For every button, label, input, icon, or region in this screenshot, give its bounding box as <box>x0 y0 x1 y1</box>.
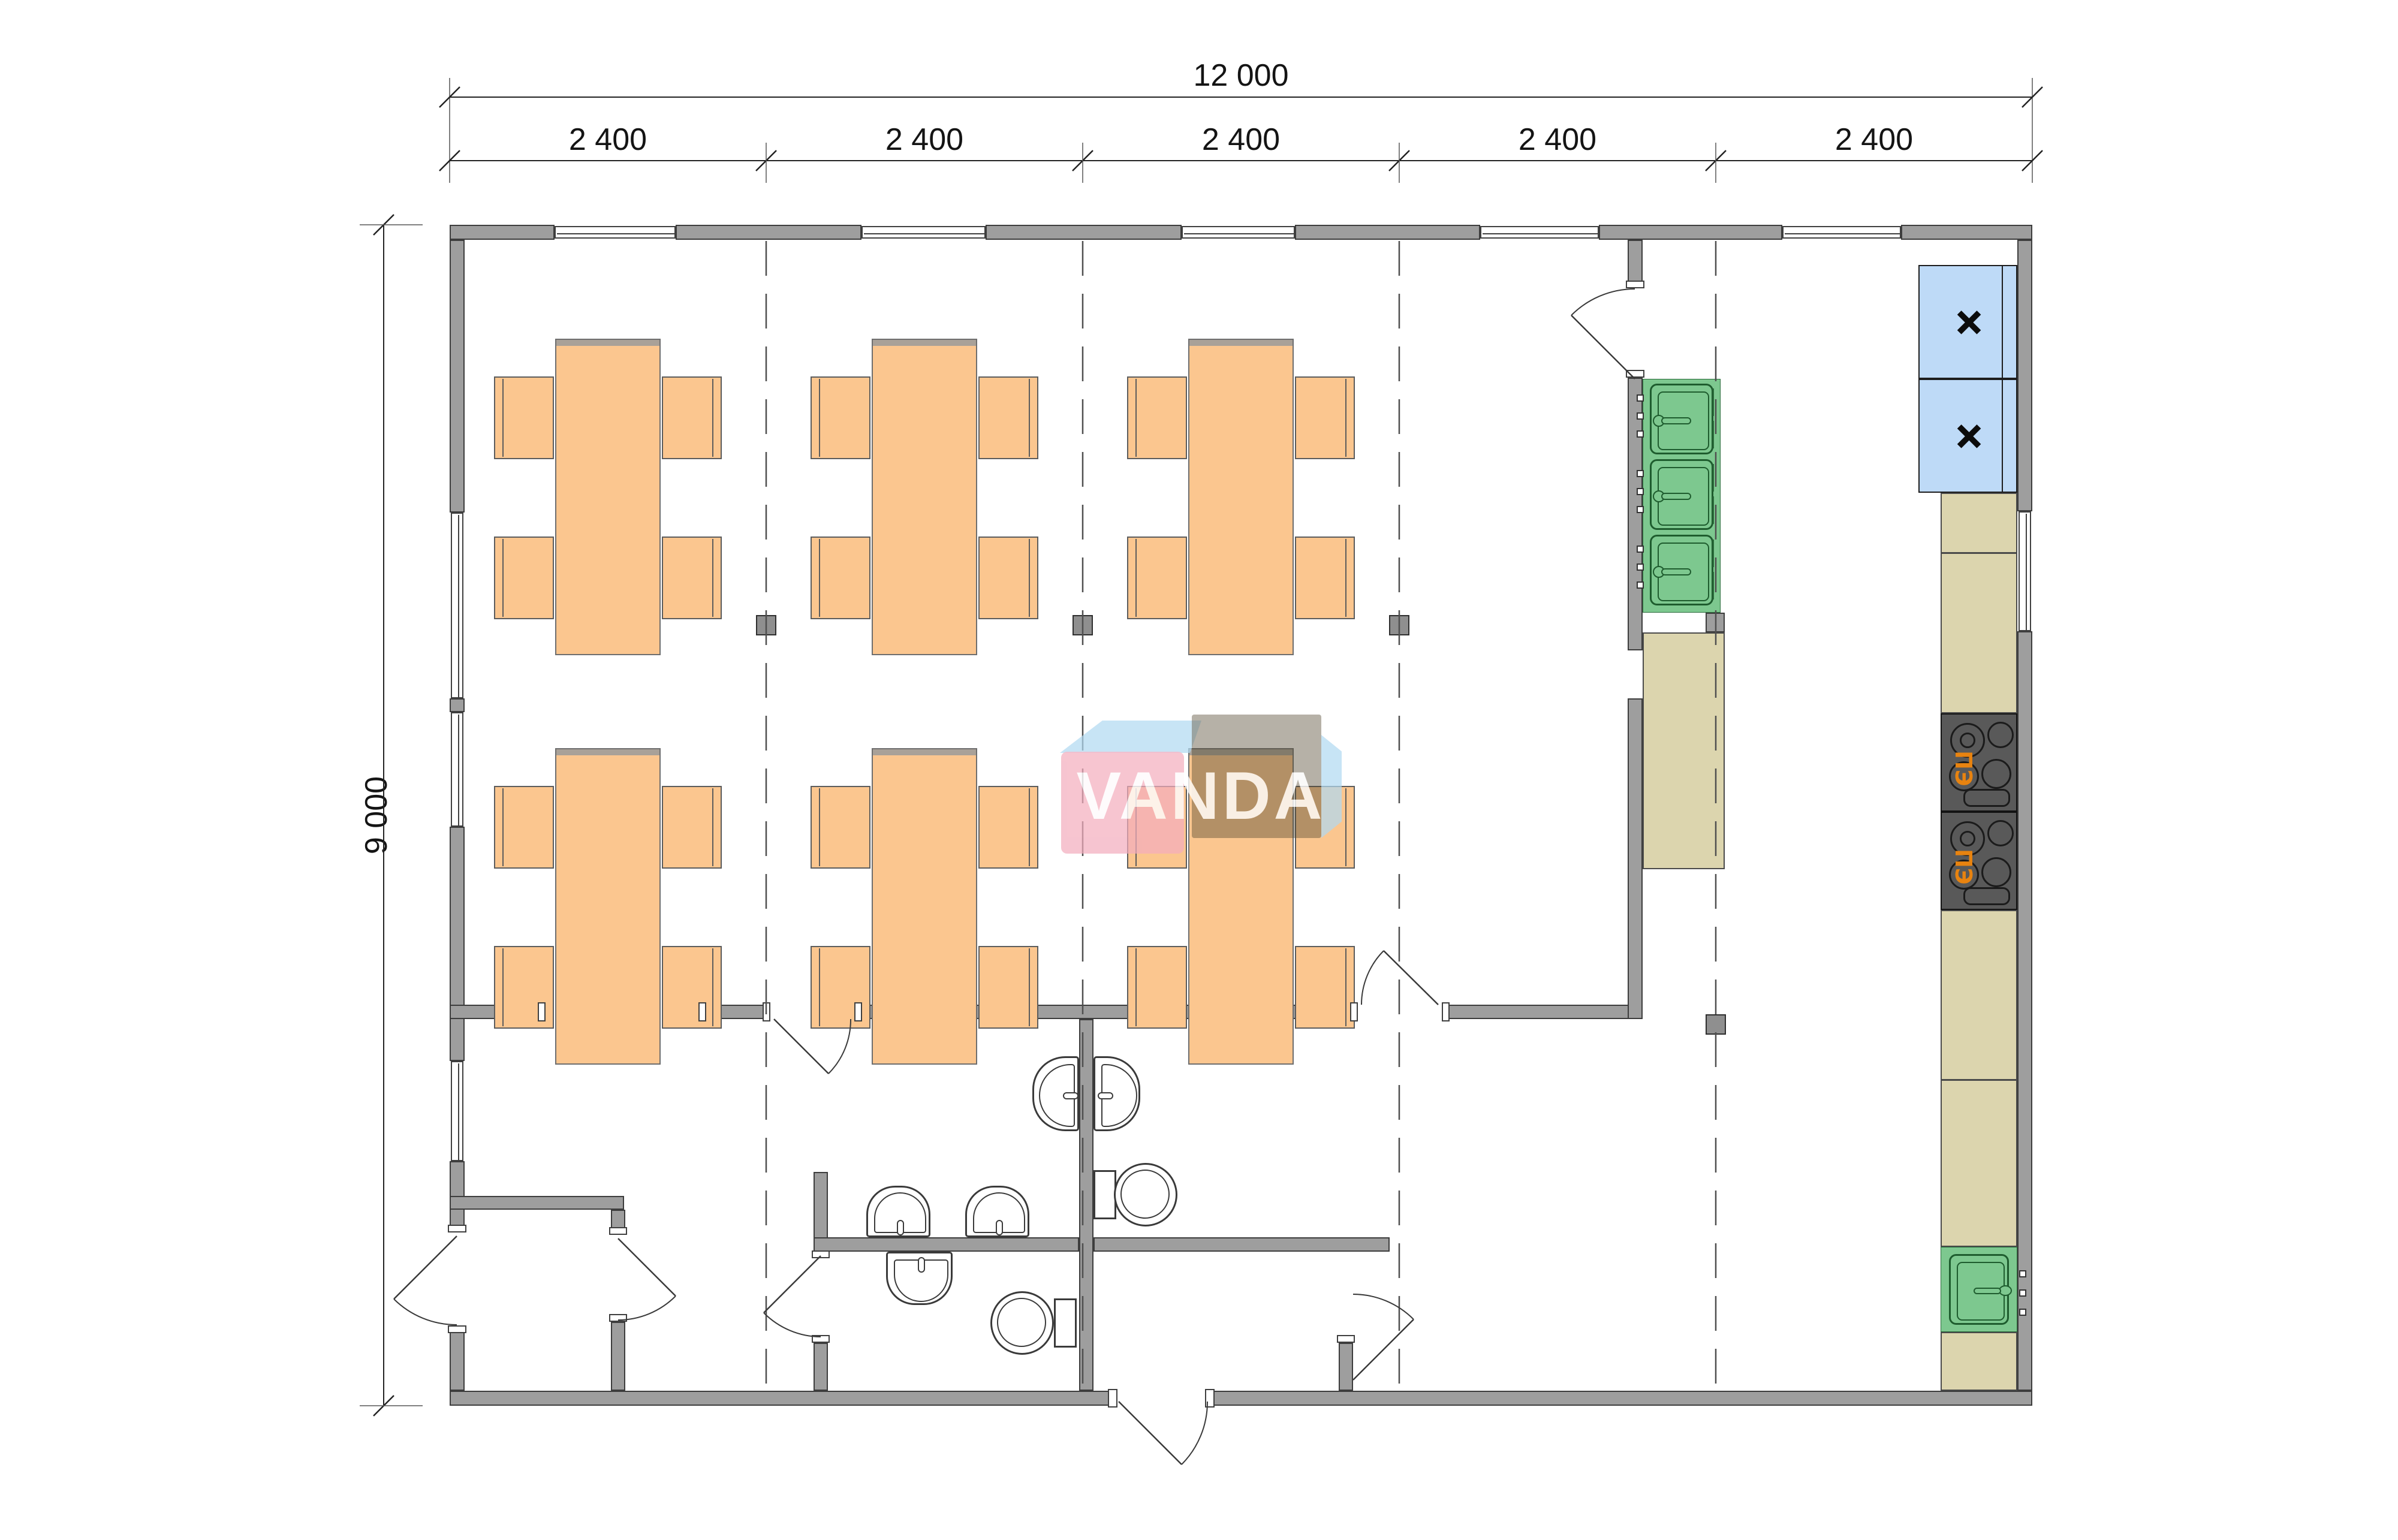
logo-top-face <box>1060 721 1201 753</box>
door-swing-arc <box>1361 951 1384 1005</box>
door-swing-arc <box>1353 1294 1414 1319</box>
door-leaf <box>1353 1319 1414 1380</box>
door-swing-arc <box>394 1299 457 1325</box>
vanda-logo-text: VANDA <box>1060 754 1342 838</box>
door-swing-arc <box>829 1019 851 1074</box>
door-leaf <box>1384 951 1438 1005</box>
door-leaf <box>774 1019 829 1074</box>
door-swing-arc <box>1182 1402 1207 1464</box>
floor-plan: VANDA ✕✕ПЭПЭ12 0002 4002 4002 4002 4002 … <box>0 0 2398 1540</box>
door-leaf <box>1571 315 1635 379</box>
door-swing-arc <box>618 1296 676 1320</box>
door-swing-arc <box>764 1313 821 1337</box>
door-leaf <box>394 1236 457 1299</box>
door-swing-arc <box>1571 289 1635 315</box>
door-leaf <box>764 1256 821 1313</box>
door-leaf <box>1119 1402 1182 1464</box>
vanda-watermark: VANDA <box>1056 715 1342 856</box>
door-leaf <box>618 1238 676 1296</box>
